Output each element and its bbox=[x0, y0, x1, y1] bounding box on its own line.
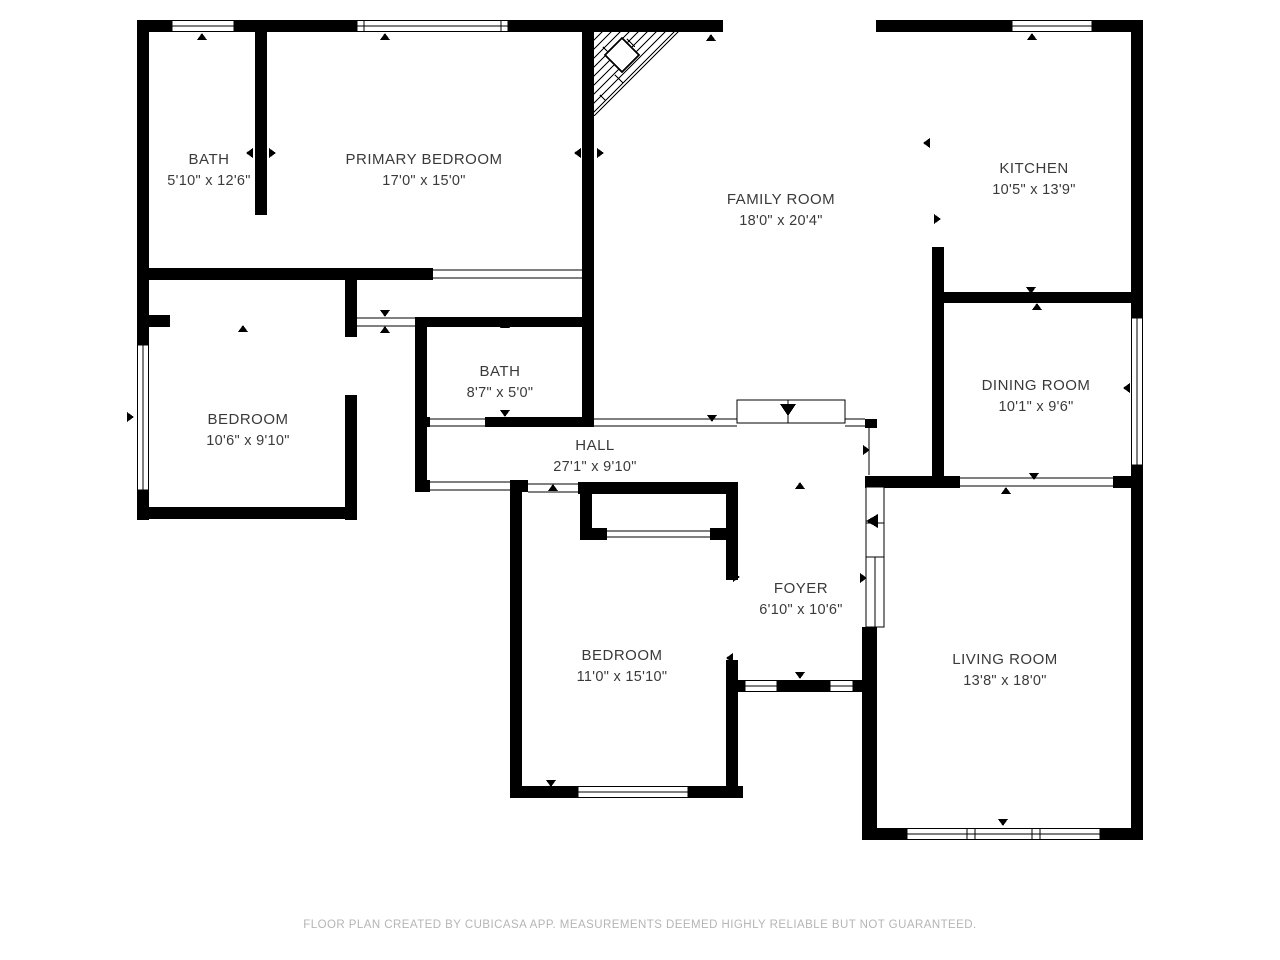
opening-marker-icon bbox=[1029, 473, 1039, 480]
floor-plan-drawing bbox=[0, 0, 1280, 960]
opening-marker-icon bbox=[127, 412, 134, 422]
room-label-dining-room: DINING ROOM 10'1" x 9'6" bbox=[982, 376, 1091, 418]
window bbox=[138, 345, 149, 490]
wall-segment bbox=[862, 627, 877, 840]
window bbox=[172, 21, 234, 32]
opening-marker-icon bbox=[934, 214, 941, 224]
room-dims: 11'0" x 15'10" bbox=[577, 668, 668, 688]
opening-marker-icon bbox=[998, 819, 1008, 826]
room-dims: 5'10" x 12'6" bbox=[167, 172, 250, 192]
opening-marker-icon bbox=[795, 672, 805, 679]
opening-marker-icon bbox=[380, 326, 390, 333]
fireplace-hatch bbox=[560, 20, 686, 146]
room-name: PRIMARY BEDROOM bbox=[346, 150, 503, 170]
window bbox=[907, 829, 1100, 840]
room-name: FOYER bbox=[759, 579, 842, 599]
wall-segment bbox=[345, 268, 357, 337]
room-name: BEDROOM bbox=[577, 646, 668, 666]
opening-marker-icon bbox=[1123, 383, 1130, 393]
opening-marker-icon bbox=[1001, 487, 1011, 494]
room-name: DINING ROOM bbox=[982, 376, 1091, 396]
room-label-family-room: FAMILY ROOM 18'0" x 20'4" bbox=[727, 190, 835, 232]
wall-segment bbox=[932, 247, 944, 487]
room-label-bath-upper: BATH 5'10" x 12'6" bbox=[167, 150, 250, 192]
wall-segment bbox=[415, 417, 430, 427]
room-dims: 6'10" x 10'6" bbox=[759, 601, 842, 621]
room-name: BEDROOM bbox=[206, 410, 289, 430]
footer-disclaimer: FLOOR PLAN CREATED BY CUBICASA APP. MEAS… bbox=[303, 919, 976, 931]
opening-marker-icon bbox=[795, 482, 805, 489]
opening-marker-icon bbox=[1027, 33, 1037, 40]
opening-marker-icon bbox=[923, 138, 930, 148]
openings bbox=[357, 270, 1113, 690]
wall-segment bbox=[710, 528, 732, 540]
room-dims: 10'6" x 9'10" bbox=[206, 432, 289, 452]
room-label-foyer: FOYER 6'10" x 10'6" bbox=[759, 579, 842, 621]
wall-segment bbox=[876, 20, 1143, 32]
opening-marker-icon bbox=[238, 325, 248, 332]
wall-segment bbox=[865, 476, 960, 488]
wall-segment bbox=[137, 268, 433, 280]
opening-marker-icon bbox=[500, 410, 510, 417]
window bbox=[1132, 318, 1143, 465]
room-label-bath-center: BATH 8'7" x 5'0" bbox=[467, 362, 534, 404]
room-dims: 17'0" x 15'0" bbox=[346, 172, 503, 192]
opening-marker-icon bbox=[597, 148, 604, 158]
room-name: BATH bbox=[467, 362, 534, 382]
room-name: KITCHEN bbox=[992, 159, 1075, 179]
opening-marker-icon bbox=[380, 310, 390, 317]
window bbox=[830, 681, 853, 692]
room-dims: 13'8" x 18'0" bbox=[952, 672, 1058, 692]
wall-segment bbox=[415, 317, 427, 492]
wall-segment bbox=[865, 419, 877, 428]
window bbox=[866, 557, 884, 627]
room-label-hall: HALL 27'1" x 9'10" bbox=[553, 436, 636, 478]
wall-segment bbox=[582, 32, 594, 427]
room-dims: 8'7" x 5'0" bbox=[467, 384, 534, 404]
room-name: LIVING ROOM bbox=[952, 650, 1058, 670]
window bbox=[357, 21, 508, 32]
opening-marker-icon bbox=[197, 33, 207, 40]
room-dims: 10'1" x 9'6" bbox=[982, 398, 1091, 418]
wall-segment bbox=[415, 268, 427, 280]
wall-segment bbox=[580, 494, 592, 540]
opening-marker-icon bbox=[574, 148, 581, 158]
wall-segment bbox=[1113, 476, 1132, 488]
opening-marker-icon bbox=[269, 148, 276, 158]
opening-marker-icon bbox=[380, 33, 390, 40]
wall-segment bbox=[510, 482, 522, 798]
room-label-primary-bedroom: PRIMARY BEDROOM 17'0" x 15'0" bbox=[346, 150, 503, 192]
room-name: HALL bbox=[553, 436, 636, 456]
window bbox=[745, 681, 777, 692]
fireplace-diamond bbox=[605, 38, 639, 72]
wall-segment bbox=[255, 32, 267, 215]
window bbox=[1012, 21, 1092, 32]
room-name: BATH bbox=[167, 150, 250, 170]
room-dims: 10'5" x 13'9" bbox=[992, 181, 1075, 201]
room-label-bedroom-left: BEDROOM 10'6" x 9'10" bbox=[206, 410, 289, 452]
room-label-kitchen: KITCHEN 10'5" x 13'9" bbox=[992, 159, 1075, 201]
wall-segment bbox=[147, 315, 170, 327]
opening-marker-icon bbox=[780, 404, 796, 416]
wall-segment bbox=[485, 417, 594, 427]
opening-marker-icon bbox=[546, 780, 556, 787]
room-name: FAMILY ROOM bbox=[727, 190, 835, 210]
room-dims: 27'1" x 9'10" bbox=[553, 458, 636, 478]
wall-segment bbox=[592, 528, 607, 540]
wall-segment bbox=[578, 482, 738, 494]
floor-plan-page: BATH 5'10" x 12'6" PRIMARY BEDROOM 17'0"… bbox=[0, 0, 1280, 960]
wall-segment bbox=[415, 480, 430, 492]
opening-marker-icon bbox=[1032, 303, 1042, 310]
opening-marker-icon bbox=[548, 484, 558, 491]
room-label-living-room: LIVING ROOM 13'8" x 18'0" bbox=[952, 650, 1058, 692]
opening-marker-icon bbox=[706, 34, 716, 41]
room-label-bedroom-lower: BEDROOM 11'0" x 15'10" bbox=[577, 646, 668, 688]
room-dims: 18'0" x 20'4" bbox=[727, 212, 835, 232]
window bbox=[578, 787, 688, 798]
